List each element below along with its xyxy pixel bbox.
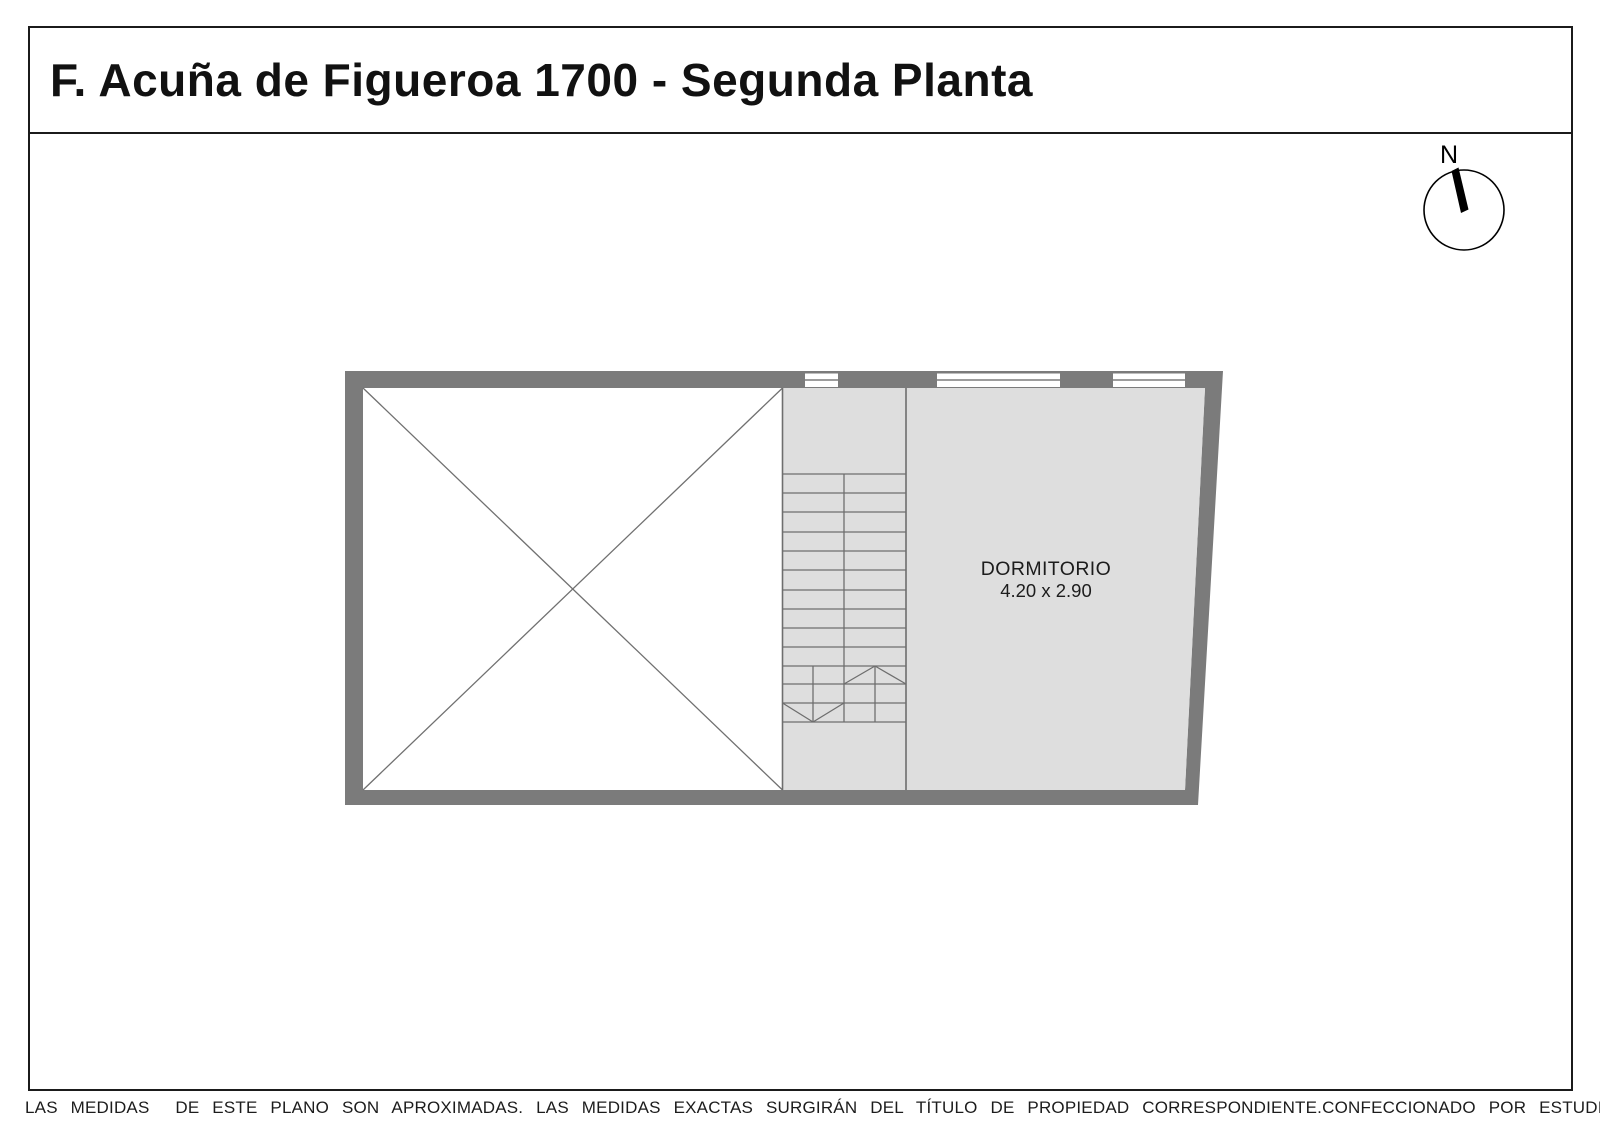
- north-compass: N: [1395, 135, 1555, 270]
- footer-credit: CONFECCIONADO POR ESTUDIO NARTEX: [1322, 1098, 1600, 1118]
- title-band: F. Acuña de Figueroa 1700 - Segunda Plan…: [30, 28, 1571, 134]
- window-1: [805, 374, 838, 388]
- page-title: F. Acuña de Figueroa 1700 - Segunda Plan…: [30, 53, 1033, 107]
- window-2: [937, 374, 1060, 388]
- footer: LAS MEDIDAS DE ESTE PLANO SON APROXIMADA…: [25, 1098, 1577, 1124]
- north-label: N: [1440, 141, 1458, 169]
- room-dimensions: 4.20 x 2.90: [1000, 580, 1092, 601]
- window-3: [1113, 374, 1185, 388]
- footer-disclaimer: LAS MEDIDAS DE ESTE PLANO SON APROXIMADA…: [25, 1098, 1322, 1118]
- floor-plan-svg: DORMITORIO 4.20 x 2.90: [335, 360, 1235, 815]
- compass-needle-icon: [1452, 168, 1469, 214]
- room-label: DORMITORIO: [981, 558, 1111, 580]
